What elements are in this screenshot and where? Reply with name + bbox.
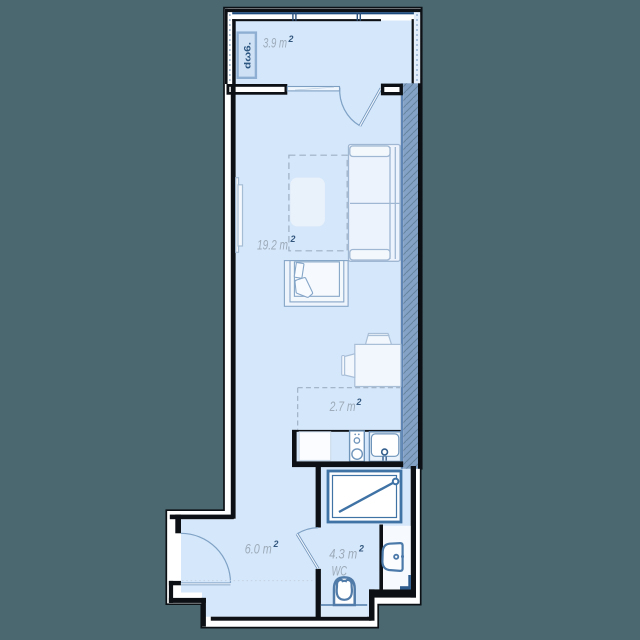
svg-text:2: 2 (358, 544, 364, 554)
svg-text:2: 2 (273, 539, 279, 549)
svg-text:2: 2 (288, 34, 294, 44)
svg-text:6.0 m: 6.0 m (245, 541, 272, 557)
svg-text:dω6.: dω6. (243, 42, 253, 69)
svg-text:4.3 m: 4.3 m (329, 546, 357, 562)
svg-text:3.9 m: 3.9 m (263, 35, 287, 51)
svg-text:2.7 m: 2.7 m (329, 398, 356, 414)
svg-text:2: 2 (290, 234, 296, 244)
svg-text:19.2 m: 19.2 m (257, 237, 288, 253)
svg-text:2: 2 (356, 397, 362, 407)
